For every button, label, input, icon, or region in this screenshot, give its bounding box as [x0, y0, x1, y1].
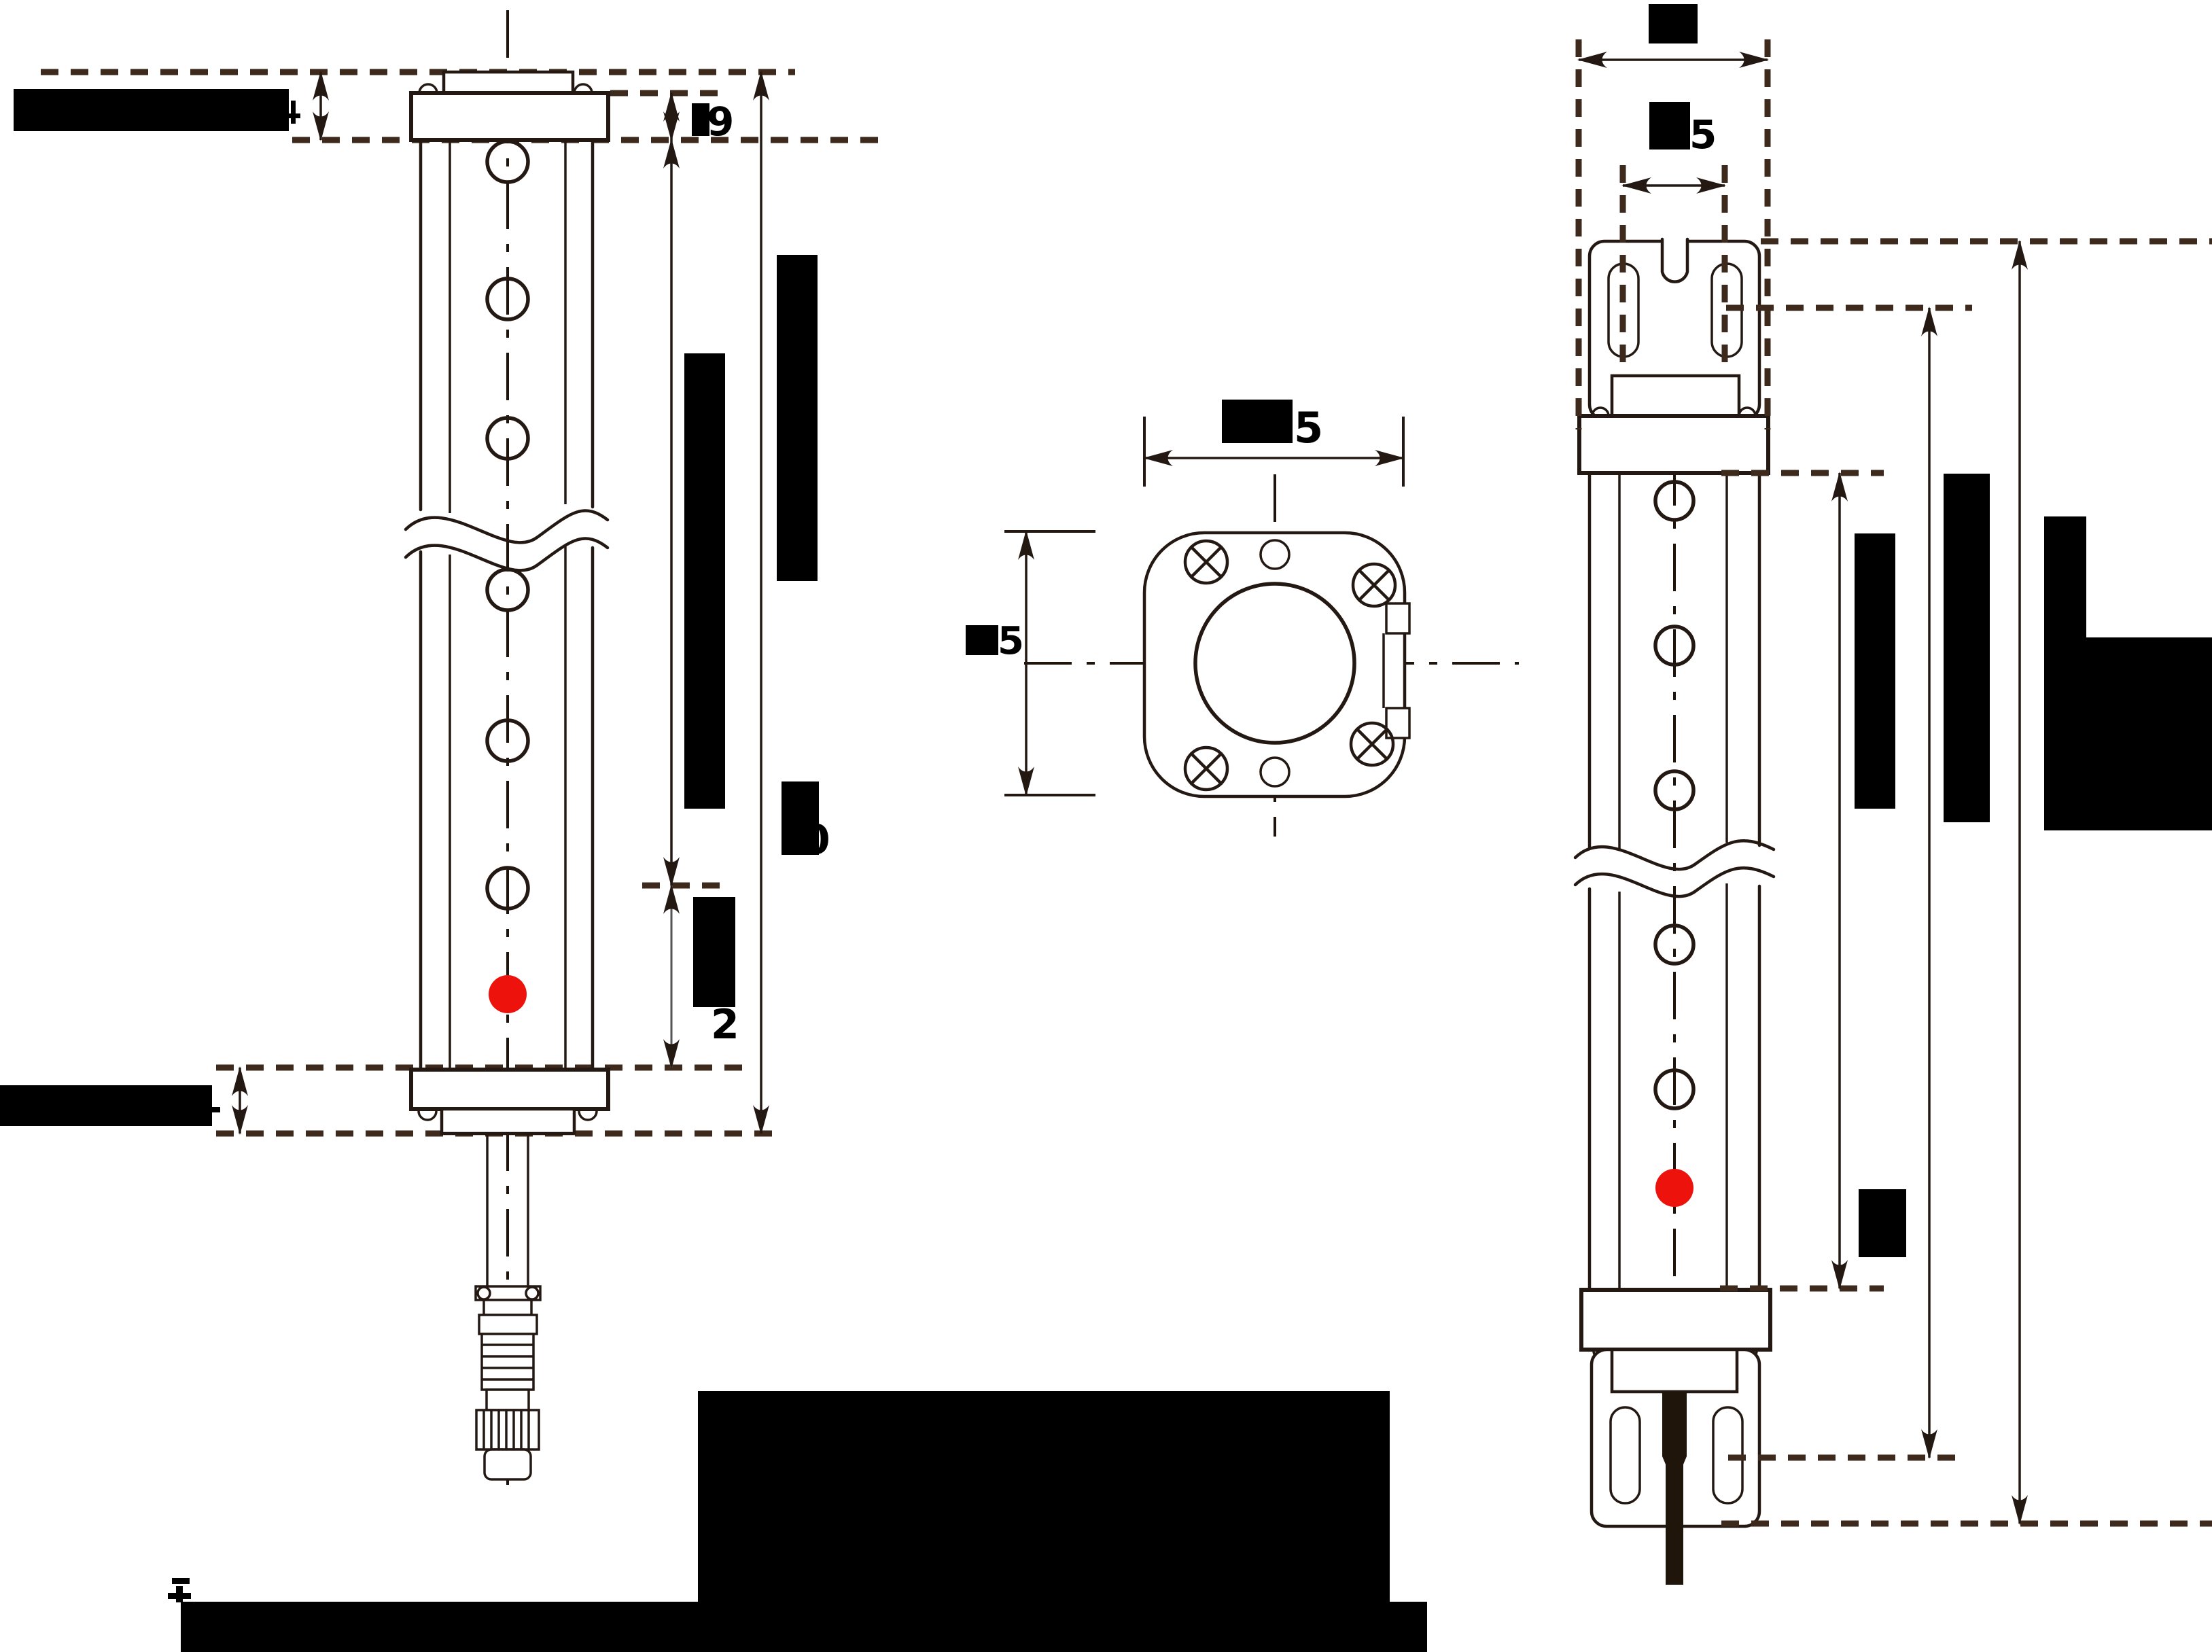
redacted-label-total-height-text — [777, 255, 818, 581]
dimension-drawing: 9 2 0 5 5 — [0, 0, 2212, 1652]
front-bottom-screw-right — [579, 1111, 597, 1120]
dim-text-total-height: 0 — [802, 816, 830, 864]
side-bottom-cap — [1581, 1290, 1770, 1350]
dim-text-hole-pitch-width: 5 — [1689, 111, 1717, 158]
dimension-drawing-page: 9 2 0 5 5 — [0, 0, 2212, 1652]
side-cable — [1662, 1392, 1687, 1585]
side-bottom-plate — [1612, 1350, 1737, 1392]
dim-text-cap-height: 9 — [707, 99, 734, 145]
redacted-block-bottom-center — [698, 1391, 1390, 1612]
redacted-block-right — [2044, 637, 2212, 830]
side-top-slot-left — [1609, 264, 1638, 357]
redacted-label-top-left — [14, 89, 289, 131]
dim-text-lower-zone: 2 — [711, 1001, 739, 1049]
section-notch-top — [1386, 603, 1409, 633]
redacted-label-mounting-pitch — [1944, 474, 1990, 822]
redacted-label-protection-height — [684, 353, 725, 809]
front-cable-connector — [476, 1133, 540, 1479]
redacted-label-hole-pitch-width — [1649, 102, 1690, 150]
front-bottom-screw-left — [419, 1111, 436, 1120]
redacted-fragment — [212, 1107, 220, 1112]
front-bottom-neck — [442, 1109, 574, 1133]
front-bottom-cap — [411, 1070, 608, 1109]
redacted-fragment — [285, 113, 300, 118]
dim-text-section-width: 5 — [1294, 403, 1323, 453]
front-top-cap — [411, 93, 608, 140]
redacted-bar-bottom — [181, 1602, 1427, 1652]
redacted-label-bottom-left — [0, 1085, 212, 1126]
redacted-label-section-width — [1222, 400, 1293, 443]
redacted-label-beam-area — [1855, 533, 1895, 809]
redacted-fragment — [172, 1578, 190, 1584]
redacted-label-beam-area-value — [1859, 1189, 1906, 1257]
redacted-fragment — [168, 1593, 191, 1599]
front-view: 9 2 0 — [0, 10, 890, 1485]
redacted-fragment — [291, 101, 296, 124]
side-view: 5 — [1575, 4, 2212, 1585]
redacted-label-overall-height — [2044, 516, 2086, 652]
dim-text-section-height: 5 — [998, 619, 1024, 663]
cross-section-view: 5 5 — [966, 400, 1519, 837]
side-indicator-dot — [1655, 1169, 1693, 1207]
side-top-cap — [1579, 416, 1768, 473]
front-top-plate — [444, 72, 573, 93]
redacted-label-lower-zone — [693, 897, 735, 1007]
side-top-plate — [1612, 376, 1739, 417]
bottom-redactions — [168, 1391, 1427, 1652]
redacted-label-section-height — [966, 625, 998, 655]
redacted-label-outer-width — [1649, 4, 1698, 43]
side-bottom-slot-left — [1611, 1407, 1640, 1503]
front-indicator-dot — [489, 975, 527, 1013]
